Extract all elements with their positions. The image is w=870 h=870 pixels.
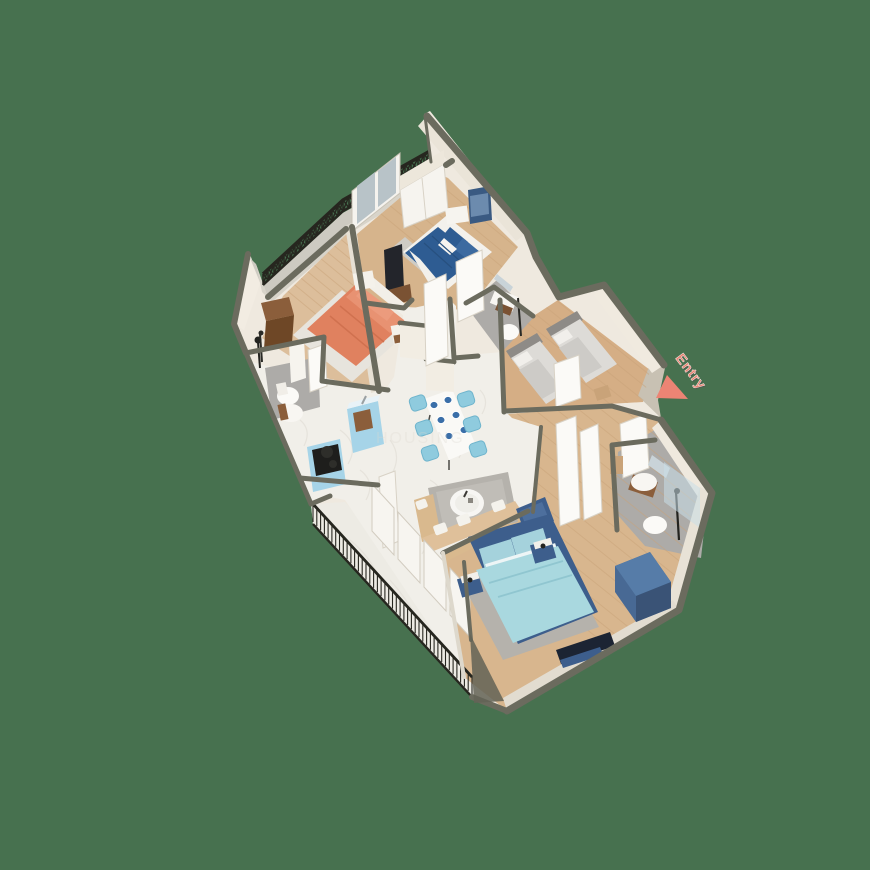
svg-text:HOUSING: HOUSING: [376, 430, 465, 447]
